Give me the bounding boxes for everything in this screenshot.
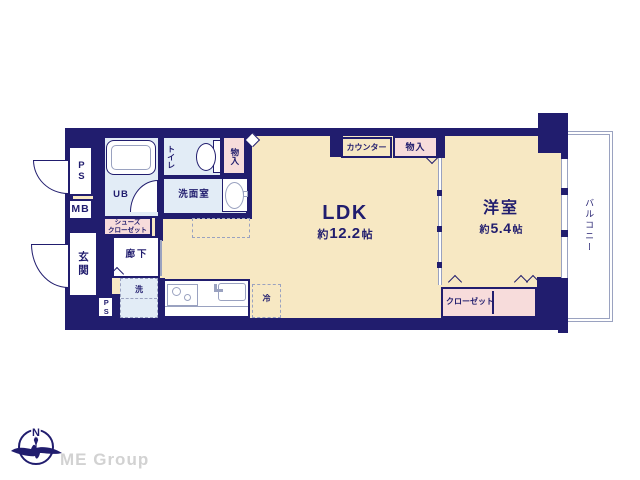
kitchen-sink (218, 283, 246, 301)
fridge-label: 冷 (252, 292, 281, 306)
bathtub (106, 140, 156, 175)
floorplan-canvas: LDK 約12.2帖 洋室 約5.4帖 バルコニー 玄関 廊下 洗面室 トイレ … (0, 0, 640, 480)
ps-top-label: PS (71, 153, 90, 189)
kitchen-faucet (214, 284, 217, 292)
hallway-door-line (160, 240, 162, 276)
shoes-closet-label: シューズ クローゼット (103, 218, 152, 235)
ldk-dashed-area (192, 218, 250, 238)
window-divider (561, 230, 568, 237)
hallway-label: 廊下 (118, 249, 156, 262)
partition-tick (437, 262, 442, 268)
entrance-label: 玄関 (70, 240, 96, 288)
door-arc-meter (33, 160, 68, 194)
washer-label: 洗 (120, 284, 158, 296)
ldk-size: 約12.2帖 (295, 225, 395, 243)
pillar-bottom-right (537, 277, 568, 323)
pillar-top-right (538, 113, 568, 153)
counter-front-line (165, 306, 248, 307)
ldk-label: LDK (295, 201, 395, 225)
western-room-label: 洋室 (465, 199, 537, 219)
storage-ldk-label: 物入 (393, 138, 438, 156)
window-divider (561, 188, 568, 195)
compass-north-letter: N (32, 427, 40, 439)
compass-icon: N (8, 420, 66, 472)
wall-stub-bottom-right (558, 322, 568, 333)
wall-bottom (65, 318, 568, 330)
closet-label: クローゼット (444, 295, 496, 309)
door-arc-entrance (31, 244, 68, 288)
wall-top (65, 128, 538, 136)
wall-fill (93, 136, 103, 232)
window-divider (561, 153, 568, 159)
washbasin (225, 182, 244, 209)
washroom-label: 洗面室 (166, 189, 222, 202)
wall-entrance-hall (96, 231, 112, 297)
balcony-label: バルコニー (578, 185, 600, 265)
balcony-window (561, 153, 568, 278)
partition-tick (437, 226, 442, 232)
partition-tick (437, 190, 442, 196)
western-room-size: 約5.4帖 (465, 220, 537, 236)
counter-label: カウンター (341, 139, 392, 156)
toilet-bowl (196, 143, 216, 171)
wall-partition-top (437, 136, 445, 158)
meter-box-label: MB (68, 202, 93, 217)
unit-bath-label: UB (109, 189, 133, 201)
washbasin-tap (243, 191, 248, 197)
logo-text: ME Group (60, 450, 170, 470)
storage-hall-label: 物入 (224, 140, 244, 172)
toilet-label: トイレ (164, 139, 178, 175)
ps-bottom-label: PS (99, 298, 112, 316)
stove (167, 284, 198, 306)
